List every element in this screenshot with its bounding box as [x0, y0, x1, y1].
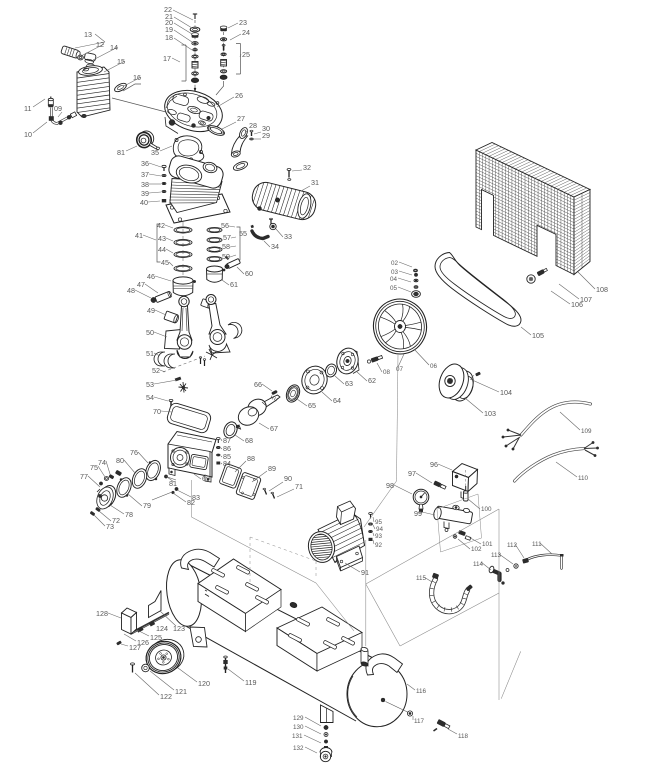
svg-text:23: 23 — [239, 18, 247, 27]
svg-text:110: 110 — [578, 475, 589, 482]
svg-text:95: 95 — [375, 519, 383, 526]
svg-text:46: 46 — [147, 272, 155, 281]
svg-text:92: 92 — [375, 542, 383, 549]
svg-text:74: 74 — [98, 458, 106, 467]
svg-text:35: 35 — [151, 148, 159, 157]
svg-text:16: 16 — [133, 73, 141, 82]
svg-text:114: 114 — [473, 561, 484, 568]
svg-text:68: 68 — [245, 436, 253, 445]
svg-text:123: 123 — [173, 624, 185, 633]
svg-text:58: 58 — [222, 242, 230, 251]
svg-text:10: 10 — [24, 130, 32, 139]
svg-text:25: 25 — [242, 50, 250, 59]
svg-text:57: 57 — [223, 233, 231, 242]
svg-text:45: 45 — [161, 258, 169, 267]
svg-text:40: 40 — [140, 198, 148, 207]
svg-text:41: 41 — [135, 231, 143, 240]
svg-text:15: 15 — [117, 57, 125, 66]
svg-text:82: 82 — [187, 498, 195, 507]
svg-text:128: 128 — [96, 609, 108, 618]
svg-text:14: 14 — [110, 43, 118, 52]
svg-text:17: 17 — [163, 54, 171, 63]
svg-text:61: 61 — [230, 280, 238, 289]
svg-text:89: 89 — [268, 464, 276, 473]
svg-text:04: 04 — [390, 276, 398, 283]
svg-text:50: 50 — [146, 328, 154, 337]
svg-text:121: 121 — [175, 687, 187, 696]
svg-text:112: 112 — [507, 542, 518, 549]
svg-text:80: 80 — [116, 456, 124, 465]
svg-text:122: 122 — [160, 692, 172, 701]
svg-text:09: 09 — [54, 104, 62, 113]
svg-text:81: 81 — [117, 148, 125, 157]
svg-text:69: 69 — [202, 474, 210, 483]
svg-text:73: 73 — [106, 522, 114, 531]
svg-text:109: 109 — [581, 428, 592, 435]
svg-text:06: 06 — [430, 363, 438, 370]
svg-text:42: 42 — [157, 221, 165, 230]
svg-text:51: 51 — [146, 349, 154, 358]
svg-text:105: 105 — [532, 331, 544, 340]
svg-text:108: 108 — [596, 285, 608, 294]
svg-text:12: 12 — [96, 40, 104, 49]
svg-text:103: 103 — [484, 409, 496, 418]
svg-text:27: 27 — [237, 114, 245, 123]
svg-text:96: 96 — [430, 460, 438, 469]
svg-text:38: 38 — [141, 180, 149, 189]
svg-text:91: 91 — [361, 568, 369, 577]
svg-text:94: 94 — [376, 526, 384, 533]
svg-text:08: 08 — [383, 369, 391, 376]
svg-text:67: 67 — [270, 424, 278, 433]
svg-text:44: 44 — [158, 245, 166, 254]
svg-text:02: 02 — [391, 260, 399, 267]
svg-text:88: 88 — [247, 454, 255, 463]
svg-text:115: 115 — [416, 575, 427, 582]
svg-text:66: 66 — [254, 380, 262, 389]
svg-text:118: 118 — [458, 733, 469, 740]
svg-text:98: 98 — [386, 481, 394, 490]
svg-text:13: 13 — [84, 30, 92, 39]
svg-text:106: 106 — [571, 300, 583, 309]
svg-text:53: 53 — [146, 380, 154, 389]
svg-text:70: 70 — [153, 407, 161, 416]
svg-text:81: 81 — [169, 479, 177, 488]
svg-text:79: 79 — [143, 501, 151, 510]
svg-text:18: 18 — [165, 33, 173, 42]
svg-text:37: 37 — [141, 170, 149, 179]
svg-text:31: 31 — [311, 178, 319, 187]
svg-text:93: 93 — [375, 533, 383, 540]
svg-text:29: 29 — [262, 131, 270, 140]
svg-text:78: 78 — [125, 510, 133, 519]
svg-text:71: 71 — [295, 482, 303, 491]
svg-text:129: 129 — [293, 715, 304, 722]
svg-text:34: 34 — [271, 242, 279, 251]
svg-text:131: 131 — [292, 733, 303, 740]
svg-text:84: 84 — [223, 459, 231, 468]
svg-text:48: 48 — [127, 286, 135, 295]
svg-text:32: 32 — [303, 163, 311, 172]
svg-text:113: 113 — [491, 552, 502, 559]
svg-text:99: 99 — [414, 509, 422, 518]
svg-text:117: 117 — [414, 718, 425, 725]
svg-text:100: 100 — [481, 506, 492, 513]
svg-text:124: 124 — [156, 624, 168, 633]
svg-text:97: 97 — [408, 469, 416, 478]
svg-text:26: 26 — [235, 91, 243, 100]
svg-text:52: 52 — [152, 366, 160, 375]
svg-text:77: 77 — [80, 472, 88, 481]
svg-text:132: 132 — [293, 745, 304, 752]
svg-text:24: 24 — [242, 28, 250, 37]
svg-text:90: 90 — [284, 474, 292, 483]
svg-text:127: 127 — [129, 643, 141, 652]
svg-text:03: 03 — [391, 269, 399, 276]
svg-text:120: 120 — [198, 679, 210, 688]
svg-text:75: 75 — [90, 463, 98, 472]
svg-text:55: 55 — [239, 229, 247, 238]
svg-text:07: 07 — [396, 366, 404, 373]
svg-text:49: 49 — [147, 306, 155, 315]
svg-text:101: 101 — [482, 541, 493, 548]
svg-text:33: 33 — [284, 232, 292, 241]
svg-text:47: 47 — [137, 280, 145, 289]
svg-text:54: 54 — [146, 393, 154, 402]
svg-text:39: 39 — [141, 189, 149, 198]
svg-text:63: 63 — [345, 379, 353, 388]
svg-text:125: 125 — [150, 633, 162, 642]
svg-text:64: 64 — [333, 396, 341, 405]
svg-text:62: 62 — [368, 376, 376, 385]
svg-text:05: 05 — [390, 285, 398, 292]
svg-text:60: 60 — [245, 269, 253, 278]
svg-text:28: 28 — [249, 121, 257, 130]
svg-text:111: 111 — [532, 541, 542, 548]
svg-text:59: 59 — [222, 252, 230, 261]
svg-text:130: 130 — [293, 724, 304, 731]
svg-text:36: 36 — [141, 159, 149, 168]
svg-text:11: 11 — [24, 104, 31, 113]
svg-text:76: 76 — [130, 448, 138, 457]
svg-text:65: 65 — [308, 401, 316, 410]
svg-text:43: 43 — [158, 234, 166, 243]
svg-text:104: 104 — [500, 388, 512, 397]
svg-text:102: 102 — [471, 546, 482, 553]
svg-text:119: 119 — [245, 678, 256, 687]
svg-text:116: 116 — [416, 688, 427, 695]
svg-text:56: 56 — [221, 221, 229, 230]
